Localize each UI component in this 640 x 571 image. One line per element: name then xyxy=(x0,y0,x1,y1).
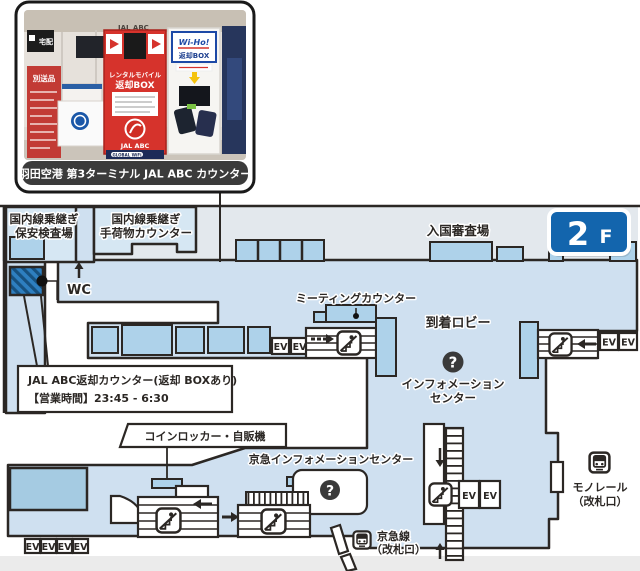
floor-map: JAL ABC返却カウンター(返却 BOXあり) 【営業時間】23:45 - 6… xyxy=(0,190,640,571)
jal-abc-text: JAL ABC xyxy=(120,142,150,150)
escalator-down-icon xyxy=(262,510,286,534)
wiho-return-box: Wi-Ho! 返却BOX xyxy=(168,28,220,154)
question-glyph: ? xyxy=(449,354,458,372)
security-corridor xyxy=(76,207,94,262)
train-icon xyxy=(353,531,370,548)
train-icon xyxy=(590,453,610,473)
bottom-left-room xyxy=(10,468,87,510)
baggage-belt-counters xyxy=(92,325,270,355)
global-wifi-text: GLOBAL WiFi xyxy=(112,153,142,158)
ev-label: EV xyxy=(274,342,288,353)
baggage-label-1: 国内線乗継ぎ xyxy=(112,212,181,226)
ev-label: EV xyxy=(26,542,40,553)
wiho-box-text: 返却BOX xyxy=(179,51,210,60)
ev-label: EV xyxy=(462,491,476,502)
counter-photo: JAL ABC 宅配 別送品 xyxy=(24,10,246,160)
wc-label: WC xyxy=(67,283,91,298)
coin-locker-label: コインロッカー・自販機 xyxy=(145,429,266,443)
gate-slot xyxy=(551,462,563,492)
monorail-gate: モノレール （改札口） xyxy=(551,453,628,508)
counter-location-dot xyxy=(37,276,48,287)
ev-label: EV xyxy=(58,542,72,553)
map-canvas: JAL ABC返却カウンター(返却 BOXあり) 【営業時間】23:45 - 6… xyxy=(0,0,640,571)
keikyu-line-label-1: 京急線 xyxy=(377,529,410,543)
ev-label: EV xyxy=(42,542,56,553)
callout-line1: JAL ABC返却カウンター(返却 BOXあり) xyxy=(27,373,237,387)
monorail-label-1: モノレール xyxy=(573,481,628,494)
rental-text-2: 返却BOX xyxy=(115,79,154,91)
ev-label: EV xyxy=(483,491,497,502)
ev-label: EV xyxy=(293,342,307,353)
rental-mobile-return-box: レンタルモバイル 返却BOX JAL ABC GLOBAL WiFi xyxy=(104,30,166,159)
ev-label: EV xyxy=(74,542,88,553)
ev-label: EV xyxy=(621,338,635,349)
security-booth xyxy=(10,237,44,259)
escalator-up-icon xyxy=(338,332,361,355)
escalator-up-icon xyxy=(429,483,451,505)
photo-card: JAL ABC 宅配 別送品 xyxy=(16,2,254,192)
arrival-lobby-label: 到着ロビー xyxy=(425,315,490,331)
ev-bank-mid: EV EV xyxy=(272,338,308,354)
baggage-label-2: 手荷物カウンター xyxy=(100,226,192,240)
takuhai-text: 宅配 xyxy=(39,37,53,46)
photo-caption-text: 羽田空港 第3ターミナル JAL ABC カウンター xyxy=(19,167,252,181)
escalator-up-icon xyxy=(157,509,181,533)
keikyu-line-label-2: （改札口） xyxy=(371,542,426,556)
jal-abc-callout: JAL ABC返却カウンター(返却 BOXあり) 【営業時間】23:45 - 6… xyxy=(18,366,237,412)
security-label-1: 国内線乗継ぎ xyxy=(10,212,79,226)
security-label-2: 保安検査場 xyxy=(14,226,73,240)
floor-suffix: F xyxy=(600,226,613,248)
info-center-label-2: センター xyxy=(430,391,476,405)
meeting-counter-label: ミーティングカウンター xyxy=(296,291,416,305)
rental-text-1: レンタルモバイル xyxy=(109,70,162,79)
bessohin-text: 別送品 xyxy=(32,73,56,83)
callout-line2: 【営業時間】23:45 - 6:30 xyxy=(28,391,169,405)
escalator-down-icon xyxy=(549,333,571,355)
keikyu-info-label: 京急インフォメーションセンター xyxy=(249,452,413,466)
wiho-logo-text: Wi-Ho! xyxy=(179,38,210,47)
question-glyph: ? xyxy=(326,484,334,500)
monorail-label-2: （改札口） xyxy=(573,494,628,508)
floor-badge: 2 F xyxy=(549,210,631,257)
stairs-strip xyxy=(246,492,308,505)
info-center-label-1: インフォメーション xyxy=(402,377,505,391)
ev-bank-bottom-left: EV EV EV EV xyxy=(25,539,88,553)
jal-abc-roundel xyxy=(71,112,89,130)
ev-label: EV xyxy=(602,338,616,349)
floor-number: 2 xyxy=(567,215,589,253)
haneda-t3-2f-floor-map-figure: JAL ABC返却カウンター(返却 BOXあり) 【営業時間】23:45 - 6… xyxy=(0,0,640,571)
bottom-strip xyxy=(0,556,640,571)
immigration-label: 入国審査場 xyxy=(427,223,490,238)
